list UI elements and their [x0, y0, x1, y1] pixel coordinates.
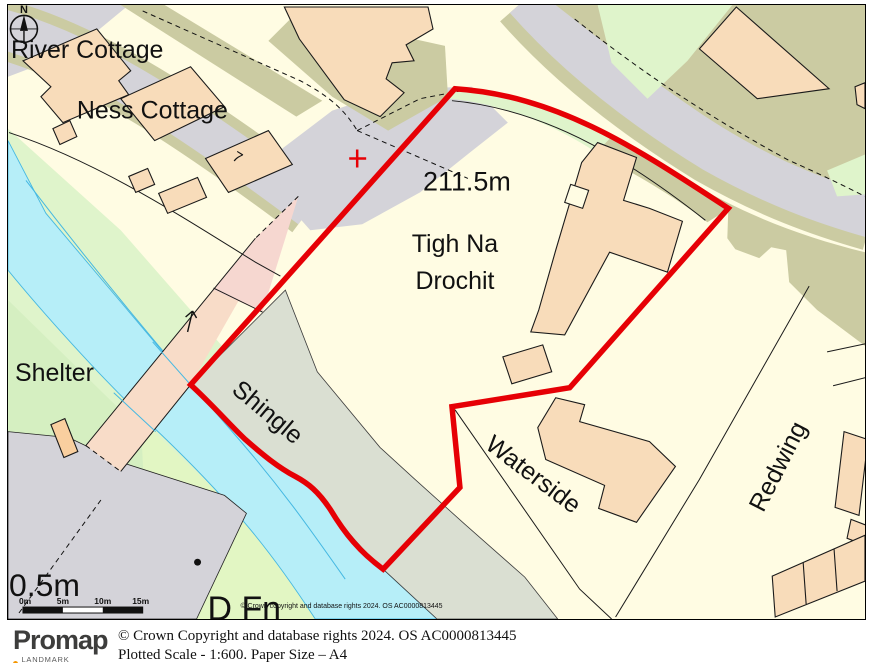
- building-edge-small: [855, 83, 865, 109]
- footer: Promap LANDMARK INFORMATION © Crown Copy…: [0, 626, 874, 663]
- map-copyright-small: © Crown copyright and database rights 20…: [240, 602, 442, 610]
- label-shelter: Shelter: [15, 359, 94, 387]
- compass-north-label: N: [20, 5, 28, 16]
- spot-dot: [194, 559, 201, 566]
- scale-5m: 5m: [57, 596, 69, 606]
- label-ness-cottage: Ness Cottage: [77, 97, 228, 125]
- promap-logo-text: Promap: [13, 627, 123, 654]
- scale-0m: 0m: [19, 596, 31, 606]
- label-river-cottage: River Cottage: [11, 36, 163, 64]
- landmark-label: LANDMARK INFORMATION: [21, 655, 123, 663]
- map-canvas[interactable]: River Cottage Ness Cottage 211.5m Tigh N…: [8, 5, 865, 619]
- label-property-1: Tigh Na: [412, 230, 499, 258]
- label-spot-height: 211.5m: [423, 166, 511, 196]
- scale-10m: 10m: [94, 596, 111, 606]
- map-frame: River Cottage Ness Cottage 211.5m Tigh N…: [7, 4, 866, 620]
- promap-logo: Promap LANDMARK INFORMATION: [13, 627, 123, 663]
- label-property-2: Drochit: [415, 267, 494, 295]
- footer-copyright: © Crown Copyright and database rights 20…: [118, 627, 516, 646]
- scale-15m: 15m: [132, 596, 149, 606]
- footer-plot-info: Plotted Scale - 1:600. Paper Size – A4: [118, 646, 516, 663]
- promap-plot-page: River Cottage Ness Cottage 211.5m Tigh N…: [0, 0, 874, 663]
